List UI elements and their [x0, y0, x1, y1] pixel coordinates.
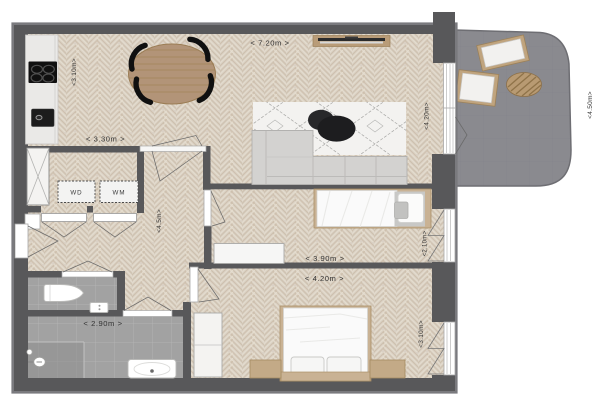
svg-text:WD: WD — [70, 190, 82, 197]
svg-text:<4.5m>: <4.5m> — [156, 209, 163, 233]
svg-text:< 3.90m >: < 3.90m > — [305, 254, 344, 263]
svg-text:<3.10m>: <3.10m> — [418, 320, 425, 348]
svg-text:<3.10m>: <3.10m> — [71, 58, 78, 86]
svg-text:< 4.20m >: < 4.20m > — [305, 274, 344, 283]
svg-text:<4.50m>: <4.50m> — [587, 91, 594, 119]
svg-text:<2.10m>: <2.10m> — [423, 230, 429, 256]
svg-text:WM: WM — [113, 190, 126, 197]
svg-text:< 3.30m >: < 3.30m > — [86, 134, 125, 143]
svg-text:< 7.20m >: < 7.20m > — [250, 38, 289, 47]
svg-text:<4.20m>: <4.20m> — [424, 102, 431, 130]
svg-text:< 2.90m >: < 2.90m > — [83, 319, 122, 328]
